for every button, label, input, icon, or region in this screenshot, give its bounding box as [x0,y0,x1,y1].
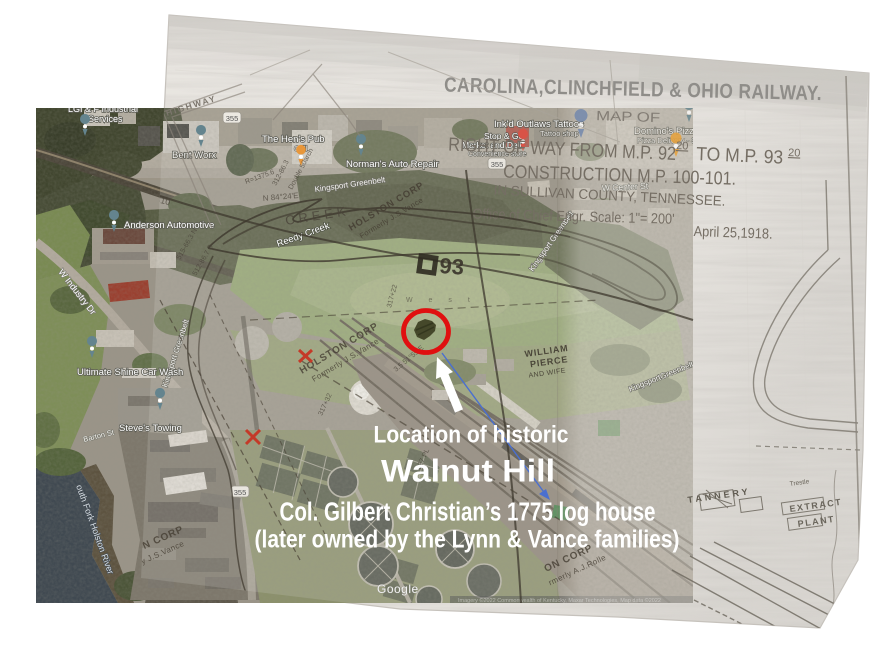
svg-text:Ultimate Shine Car Wash: Ultimate Shine Car Wash [77,367,183,378]
svg-text:355: 355 [234,488,247,497]
svg-text:MAP OF: MAP OF [596,108,660,125]
svg-text:355: 355 [226,114,239,123]
svg-text:Norman's Auto Repair: Norman's Auto Repair [346,159,439,170]
svg-text:20: 20 [676,140,689,153]
svg-text:93: 93 [439,253,465,280]
svg-text:Google: Google [377,582,419,596]
svg-text:Anderson Automotive: Anderson Automotive [124,220,214,231]
svg-text:(later owned by the Lynn & Van: (later owned by the Lynn & Vance familie… [255,526,680,554]
svg-text:Location of historic: Location of historic [374,422,569,449]
svg-text:Walnut Hill: Walnut Hill [381,453,555,489]
svg-text:Services: Services [88,114,123,124]
svg-text:20: 20 [788,147,801,160]
svg-text:W e s t: W e s t [406,297,477,304]
svg-text:Tattoo shop: Tattoo shop [540,129,579,138]
svg-text:Steve's Towing: Steve's Towing [119,423,182,434]
svg-text:TO M.P. 93: TO M.P. 93 [696,144,784,169]
svg-text:Col. Gilbert Christian’s 1775: Col. Gilbert Christian’s 1775 log house [280,498,656,526]
svg-text:355: 355 [491,160,504,169]
svg-text:Bent Worx: Bent Worx [172,150,216,161]
svg-text:Imagery ©2022 Commonwealth of: Imagery ©2022 Commonwealth of Kentucky, … [458,597,661,604]
svg-text:April 25,1918.: April 25,1918. [693,224,773,243]
